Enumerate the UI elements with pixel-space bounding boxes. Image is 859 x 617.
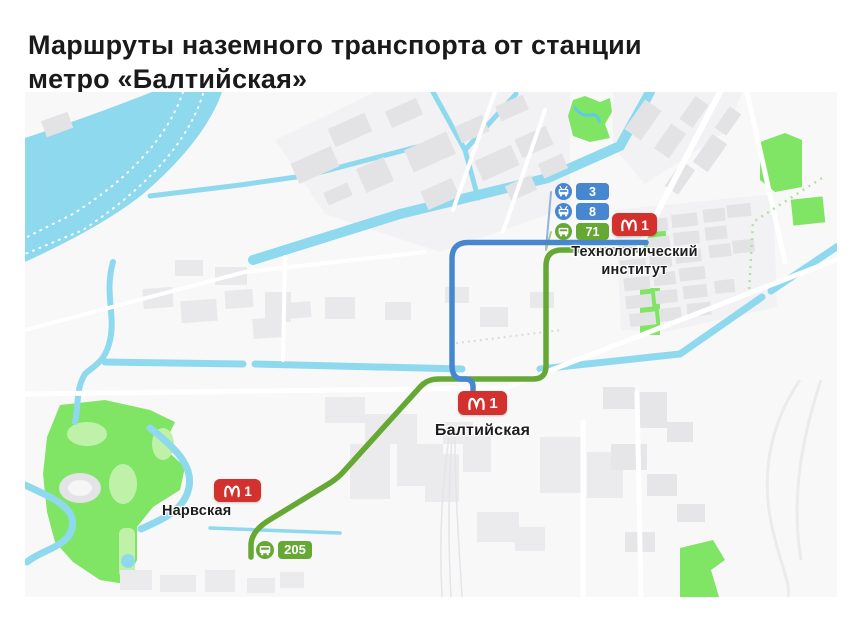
route-number-chip: 205	[278, 541, 312, 559]
metro-badge: 1	[214, 479, 261, 502]
station-label: Нарвская	[162, 502, 231, 520]
station-label: Балтийская	[435, 422, 530, 440]
station-marker-tehnologichesky: 1 Технологический институт	[564, 213, 705, 279]
metro-badge: 1	[458, 391, 507, 415]
metro-badge: 1	[612, 213, 657, 236]
title-line-1: Маршруты наземного транспорта от станции	[28, 30, 642, 60]
route-badge-205: 205	[256, 541, 312, 558]
metro-logo-icon	[223, 483, 241, 498]
page-title: Маршруты наземного транспорта от станции…	[28, 28, 808, 96]
bus-icon	[256, 541, 274, 559]
map-canvas	[25, 92, 837, 597]
metro-logo-icon	[467, 395, 486, 411]
metro-line-number: 1	[641, 218, 649, 232]
station-marker-baltiyskaya: 1 Балтийская	[407, 391, 558, 440]
trolleybus-icon	[555, 183, 572, 200]
infographic-page: { "title": { "line1": "Маршруты наземног…	[0, 0, 859, 617]
metro-line-number: 1	[244, 484, 252, 498]
route-badge-3: 3	[555, 183, 609, 200]
route-number-chip: 3	[576, 183, 609, 200]
transit-map: 3 8 71 205 1 Те	[25, 92, 837, 597]
title-line-2: метро «Балтийская»	[28, 64, 307, 94]
metro-line-number: 1	[489, 396, 497, 411]
metro-logo-icon	[620, 217, 638, 232]
station-label: Технологический институт	[564, 243, 705, 279]
